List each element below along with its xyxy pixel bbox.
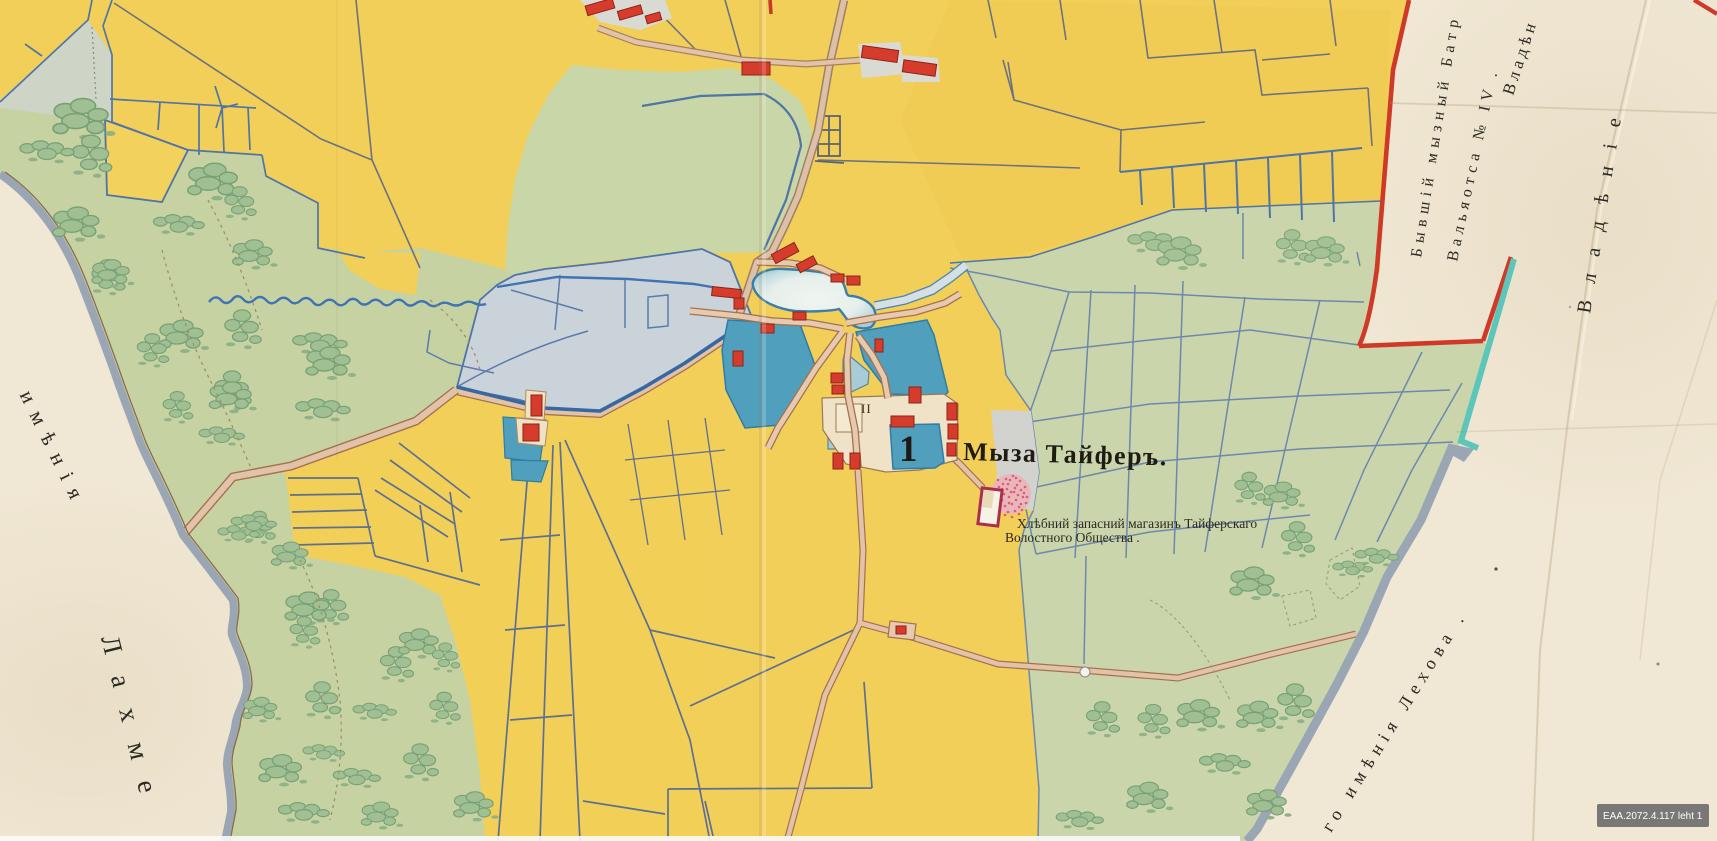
- svg-text:1: 1: [899, 429, 918, 470]
- svg-text:Волостного Общества .: Волостного Общества .: [1005, 530, 1140, 545]
- svg-text:Хлѣбний запасний магазинъ Тайф: Хлѣбний запасний магазинъ Тайферскаго: [1017, 516, 1257, 531]
- svg-text:Мыза Тайферъ.: Мыза Тайферъ.: [963, 437, 1168, 471]
- svg-text:II: II: [861, 401, 872, 416]
- svg-text:EAA.2072.4.117 leht 1: EAA.2072.4.117 leht 1: [1603, 811, 1703, 822]
